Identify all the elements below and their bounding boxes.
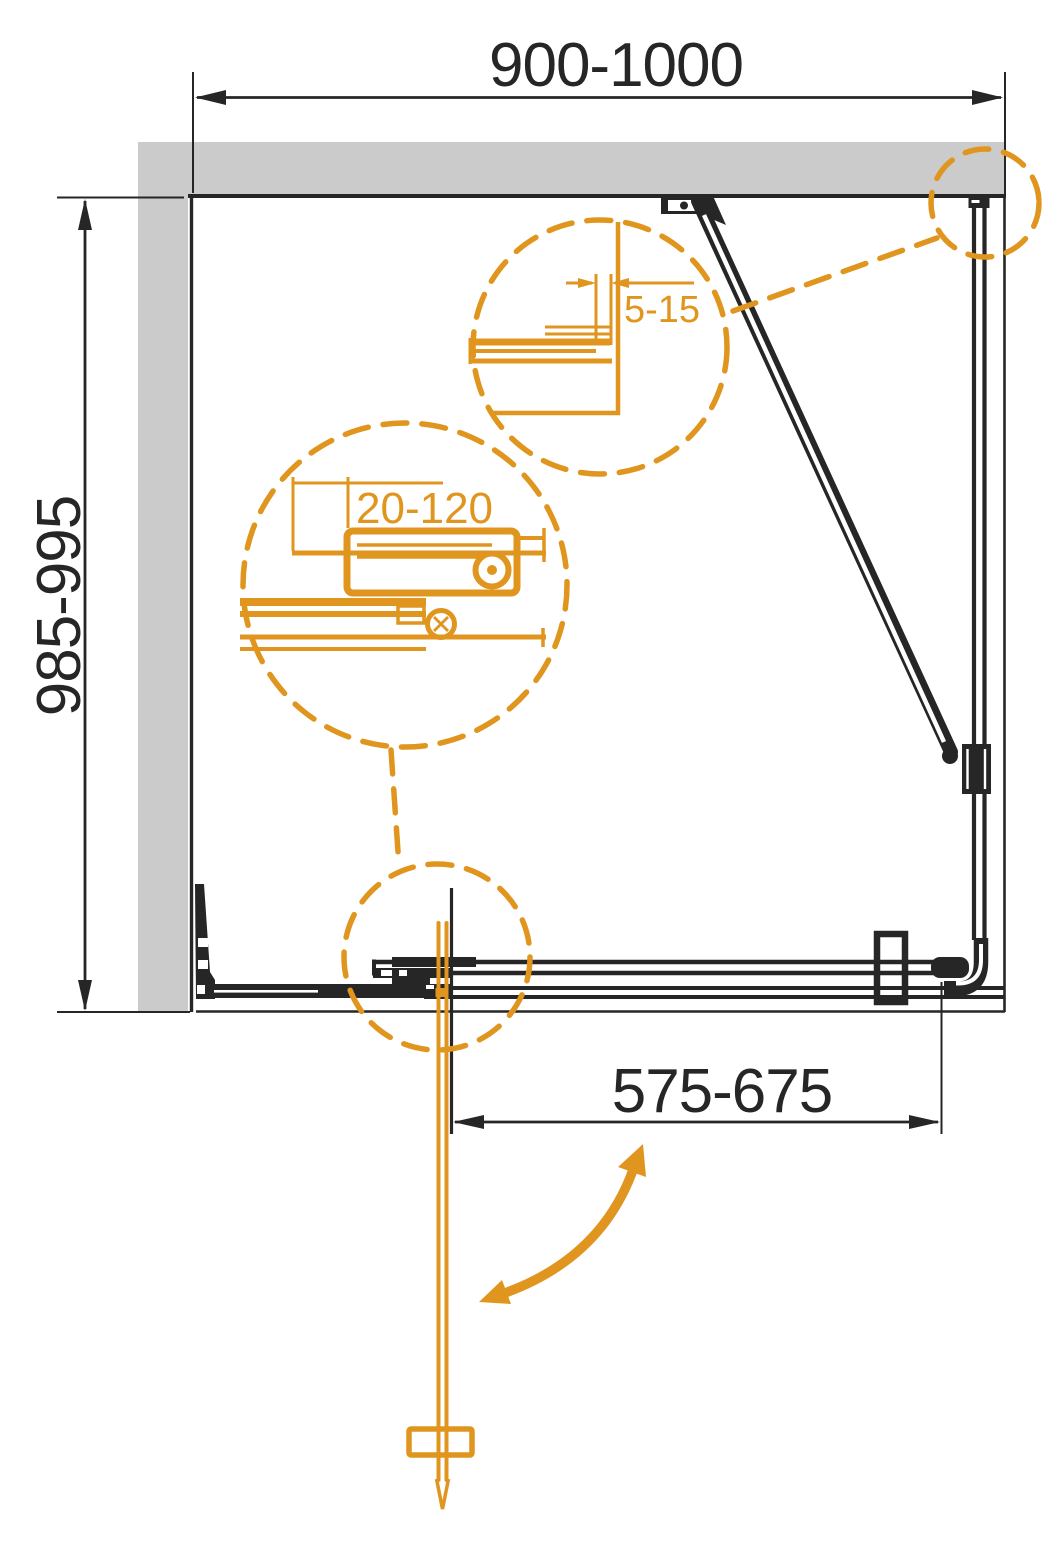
carriage-slot [399,970,407,976]
profile-notch [198,938,208,947]
door-end-pivot [942,748,958,764]
panel-cap-notch [972,200,980,203]
swing-arc [505,1170,633,1293]
rail-end-plug [931,957,969,978]
arc-arrowhead-lower [479,1280,511,1304]
arrowhead-down [78,980,92,1011]
dim-side-depth-label: 985-995 [25,496,94,717]
fixed-panel-right [944,196,991,997]
carriage-slot [381,970,392,976]
wall-top [138,142,1004,195]
detail-link-line [733,238,937,311]
detail-wall-profile-5-15: 5-15 [470,222,700,413]
arrowhead-right [909,1115,940,1129]
arrowhead-left [195,90,226,105]
profile-notch [198,960,208,969]
track-bar-groove [214,990,318,993]
detail-arrowhead [578,278,596,288]
detail-link-line [391,750,399,866]
track-bracket-right [877,934,905,1002]
detail-20-120-label: 20-120 [356,484,493,533]
profile-corner [492,222,618,413]
elbow-foot [944,981,956,997]
arrowhead-up [78,199,92,230]
detail-5-15-label: 5-15 [624,289,700,331]
arrowhead-left [453,1115,484,1129]
pivot-carriage [392,957,476,967]
detail-bracket-20-120: 20-120 [240,477,546,649]
dim-door-width-label: 575-675 [612,1057,833,1126]
pivot-block-notch [426,985,434,989]
swing-arc-arrow [479,1144,646,1304]
door-glass-gap [704,215,944,742]
hinge-pin [680,202,688,210]
bottom-track [195,884,1004,1002]
roller-axle [487,565,497,575]
profile-notch [197,985,205,994]
drawing-page: 900-1000 985-995 [0,0,1063,1545]
detail-circle-wall-profile [473,220,727,474]
enclosure-plan-drawing: 900-1000 985-995 [0,0,1063,1545]
dim-top-width-label: 900-1000 [489,31,743,100]
arrowhead-right [972,90,1003,105]
wall-left [138,142,188,1012]
open-door-tip [437,1479,449,1509]
